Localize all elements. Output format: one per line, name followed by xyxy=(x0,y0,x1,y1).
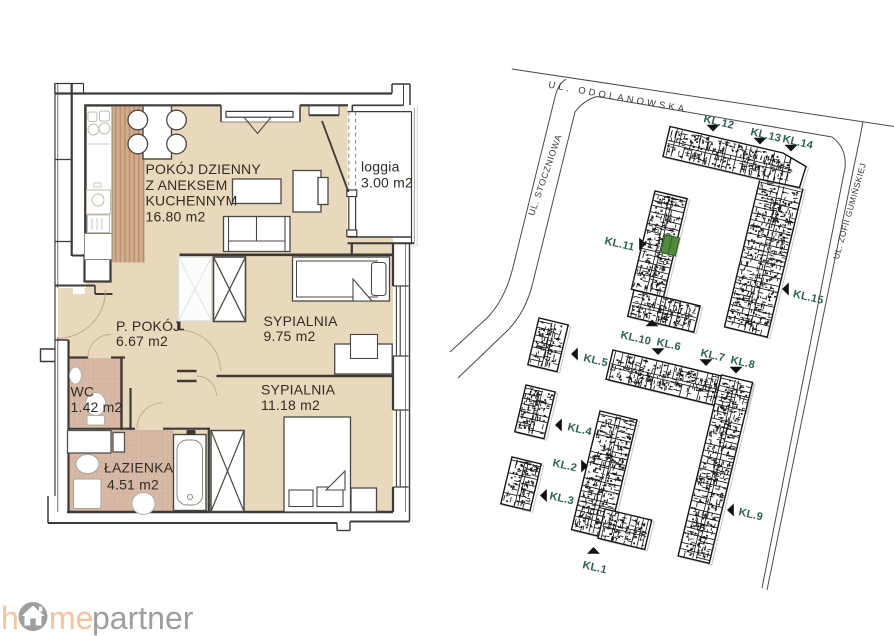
svg-text:POKÓJ DZIENNY: POKÓJ DZIENNY xyxy=(146,161,262,177)
svg-text:loggia: loggia xyxy=(361,159,400,175)
svg-text:WC: WC xyxy=(71,384,95,400)
svg-text:me: me xyxy=(49,600,93,636)
svg-text:1.42 m2: 1.42 m2 xyxy=(71,399,123,415)
svg-text:Z ANEKSEM: Z ANEKSEM xyxy=(146,177,228,193)
svg-text:SYPIALNIA: SYPIALNIA xyxy=(261,382,336,398)
svg-text:4.51 m2: 4.51 m2 xyxy=(107,477,159,493)
svg-text:6.67 m2: 6.67 m2 xyxy=(116,333,168,349)
svg-text:h: h xyxy=(1,600,19,636)
svg-text:16.80 m2: 16.80 m2 xyxy=(146,209,206,225)
svg-text:KUCHENNYM: KUCHENNYM xyxy=(146,193,238,209)
svg-text:SYPIALNIA: SYPIALNIA xyxy=(264,313,339,329)
svg-text:3.00 m2: 3.00 m2 xyxy=(361,175,413,191)
svg-text:11.18 m2: 11.18 m2 xyxy=(261,397,320,413)
svg-text:ŁAZIENKA: ŁAZIENKA xyxy=(104,460,174,476)
svg-text:P. POKÓJ: P. POKÓJ xyxy=(116,318,180,334)
svg-text:9.75 m2: 9.75 m2 xyxy=(264,328,316,344)
svg-text:partner: partner xyxy=(92,600,194,636)
